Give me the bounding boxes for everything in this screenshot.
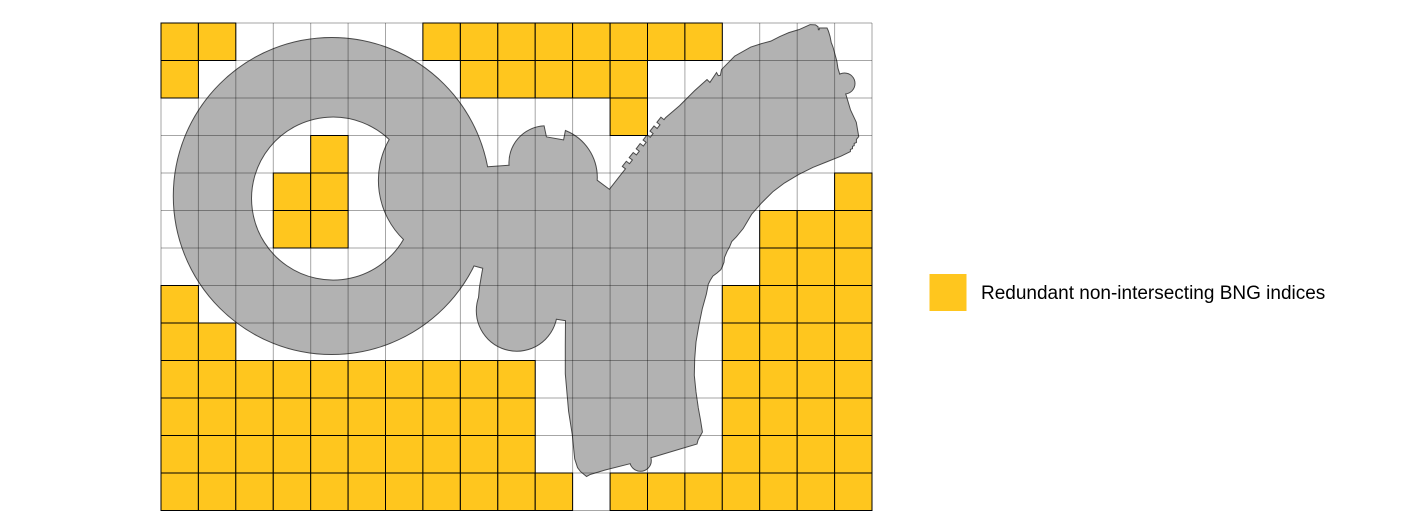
svg-text:Redundant non-intersecting BNG: Redundant non-intersecting BNG indices — [981, 283, 1325, 304]
